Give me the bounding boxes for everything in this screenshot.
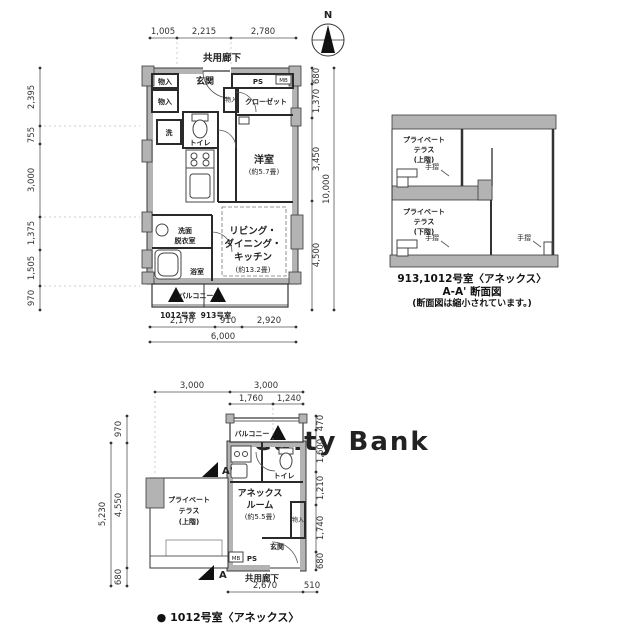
washer-label: 洗: [166, 128, 173, 137]
dim-bottom-3: 2,920: [257, 316, 281, 326]
section-marker-a-prime: [202, 462, 218, 477]
annex-entrance-label: 玄関: [270, 542, 284, 551]
section-caption-2: A-A' 断面図: [443, 285, 502, 298]
compass: N: [312, 10, 344, 56]
washroom-label-2: 脱衣室: [175, 236, 196, 245]
dim-left-3: 3,000: [27, 168, 37, 192]
handrail-label-2: 手摺: [425, 233, 439, 242]
terrace-label-3: (上階): [179, 517, 199, 526]
bdim-right-1: 470: [316, 415, 326, 431]
section-marker-a-label: A: [219, 570, 227, 581]
handrail-lower-right: [544, 242, 552, 255]
closet-label: クローゼット: [245, 97, 287, 106]
dim-bottom-1: 2,170: [170, 316, 194, 326]
dim-right-4: 4,500: [312, 243, 322, 267]
handrail-label-1: 手摺: [425, 162, 439, 171]
dim-left-4: 1,375: [27, 221, 37, 245]
bdim-left-total: 5,230: [98, 502, 108, 526]
bdim-right-4: 1,740: [316, 516, 326, 540]
storage-left-label: 物入: [158, 97, 172, 106]
annex-room-size-label: (約5.5畳): [245, 512, 276, 521]
private-terrace: プライベート テラス (上階): [146, 478, 228, 568]
dim-left-1: 2,395: [27, 85, 37, 109]
bdim-top2-1: 1,760: [239, 394, 263, 404]
dim-left-2: 755: [27, 127, 37, 143]
dim-right-3: 3,450: [312, 147, 322, 171]
dim-right-total: 10,000: [322, 174, 332, 204]
kitchen-fixtures: [186, 150, 214, 202]
bdim-left-2: 4,550: [114, 493, 124, 517]
bedroom-size-label: (約5.7畳): [249, 167, 280, 176]
bdim-bottom-1: 2,670: [253, 581, 277, 591]
bottom-plan-caption: ● 1012号室〈アネックス〉: [157, 610, 300, 624]
ps-label: PS: [253, 78, 263, 86]
dim-top-2: 2,215: [192, 27, 216, 37]
storage-top-label: 物入: [158, 77, 172, 86]
bdim-top2-2: 1,240: [277, 394, 301, 404]
terrace-upper-label-1: プライベート: [403, 135, 445, 144]
bdim-left-1: 970: [114, 421, 124, 437]
top-plan: 共用廊下 PS MB 物入 玄関 物入 物入: [142, 52, 303, 320]
annex-balcony-label: バルコニー: [235, 430, 270, 438]
section-diagram: プライベート テラス (上階) 手摺 プライベート テラス (下階) 手摺 手摺…: [390, 115, 558, 309]
ldk-label-1: リビング・: [229, 225, 277, 237]
dim-bottom-total: 6,000: [211, 332, 235, 342]
bdim-right-5: 680: [316, 553, 326, 569]
annex-kitchen-fixtures: [231, 446, 251, 478]
terrace-label-2: テラス: [179, 507, 200, 515]
dim-top-1: 1,005: [151, 27, 175, 37]
toilet-fixture: [193, 120, 207, 138]
annex-toilet-fixture: [280, 453, 292, 469]
floorplan-svg: Realty Bank N 共用廊下 PS MB: [0, 0, 640, 639]
dim-left-5: 1,505: [27, 256, 37, 280]
handrail-lower-left: [397, 240, 417, 256]
bdim-bottom-2: 510: [304, 581, 320, 591]
washbasin-fixture: [156, 224, 168, 236]
corridor-label: 共用廊下: [203, 52, 242, 64]
entrance-label: 玄関: [196, 75, 214, 87]
bdim-right-3: 1,210: [316, 476, 326, 500]
annex-toilet-label: トイレ: [274, 472, 295, 480]
terrace-lower-label-1: プライベート: [403, 207, 445, 216]
ps-strip: PS MB: [232, 74, 293, 88]
section-marker-a-prime-label: A': [222, 466, 233, 477]
toilet-door-arc: [218, 130, 236, 148]
washroom-label-1: 洗面: [178, 226, 192, 235]
handrail-upper: [397, 169, 417, 187]
dim-right-1: 680: [312, 68, 322, 84]
dim-top-3: 2,780: [251, 27, 275, 37]
bedroom-label: 洋室: [254, 153, 274, 166]
bdim-left-3: 680: [114, 569, 124, 585]
handrail-label-3: 手摺: [517, 233, 531, 242]
bathroom-label: 浴室: [190, 267, 204, 276]
annex-storage-label: 物入: [292, 516, 304, 524]
bdim-top1-2: 3,000: [254, 381, 278, 391]
bdim-top1-1: 3,000: [180, 381, 204, 391]
dim-left-6: 970: [27, 290, 37, 306]
mb-label: MB: [279, 78, 288, 84]
ldk-size-label: (約13.2畳): [235, 265, 270, 274]
annex-room-label-1: アネックス: [238, 488, 283, 499]
terrace-label-1: プライベート: [168, 495, 210, 504]
balcony-bottom-plan: バルコニー: [226, 414, 307, 442]
balcony-label: バルコニー: [179, 292, 214, 300]
toilet-label: トイレ: [190, 139, 211, 147]
floorplan-page: { "watermark": "Realty Bank", "compass":…: [0, 0, 640, 639]
section-caption-1: 913,1012号室〈アネックス〉: [397, 272, 546, 285]
ldk-label-2: ダイニング・: [224, 238, 281, 250]
annex-room-label-2: ルーム: [247, 500, 274, 511]
terrace-lower-label-2: テラス: [414, 218, 435, 226]
balcony-top-plan: バルコニー: [152, 284, 288, 307]
dim-right-2: 1,370: [312, 89, 322, 113]
bottom-plan: バルコニー トイレ アネックス ルーム (約5.5畳) 物入 玄関 MB PS …: [146, 414, 307, 624]
terrace-upper-label-2: テラス: [414, 146, 435, 154]
bdim-right-2: 1,600: [316, 439, 326, 463]
compass-n-label: N: [324, 10, 332, 21]
annex-mb-label: MB: [232, 556, 241, 562]
section-caption-3: (断面図は縮小されています。): [412, 297, 532, 309]
ldk-label-3: キッチン: [234, 252, 272, 263]
dim-bottom-2: 910: [220, 316, 236, 326]
annex-ps-label: PS: [247, 555, 257, 563]
